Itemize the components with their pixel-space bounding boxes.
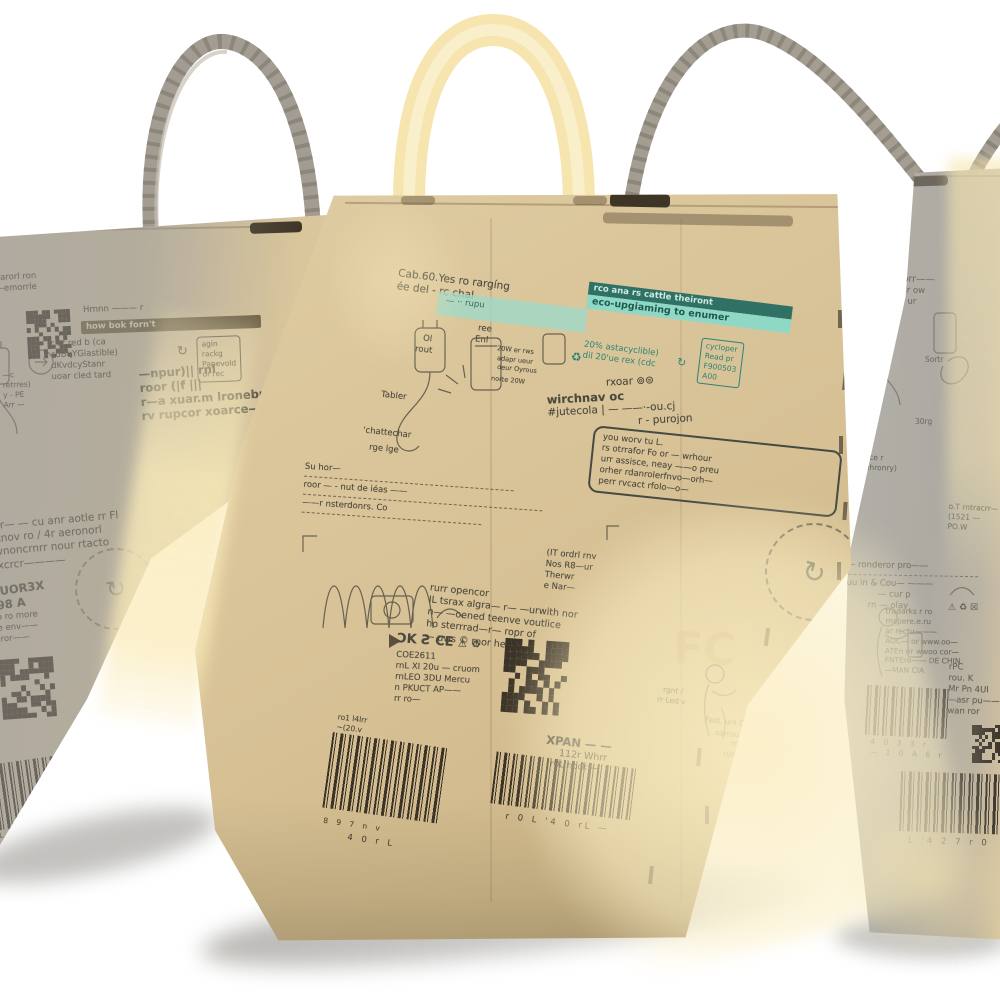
product-photo-stage: narorl ron —emorrle Hrnnn ——— r how bok … bbox=[0, 0, 1000, 1000]
twisted-paper-handle-center-icon bbox=[630, 31, 934, 208]
cream-paper-handle-icon bbox=[409, 30, 579, 205]
